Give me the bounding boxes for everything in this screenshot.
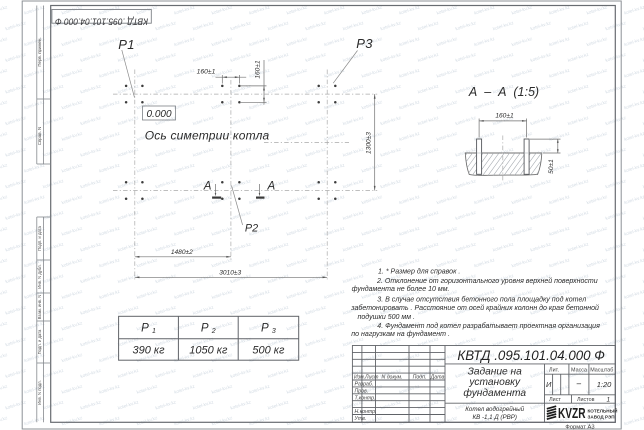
- svg-text:kotel-kv.kz: kotel-kv.kz: [511, 194, 534, 205]
- svg-text:kotel-kv.kz: kotel-kv.kz: [323, 131, 346, 142]
- svg-text:Подп.: Подп.: [413, 375, 427, 381]
- svg-text:kotel-kv.kz: kotel-kv.kz: [361, 352, 384, 363]
- svg-text:kotel-kv.kz: kotel-kv.kz: [530, 241, 553, 252]
- svg-text:3010±3: 3010±3: [219, 270, 241, 277]
- svg-text:kotel-kv.kz: kotel-kv.kz: [623, 131, 644, 142]
- svg-text:kotel-kv.kz: kotel-kv.kz: [417, 20, 440, 31]
- svg-text:kotel-kv.kz: kotel-kv.kz: [548, 383, 571, 394]
- svg-text:Подп. и дата: Подп. и дата: [37, 225, 42, 250]
- svg-text:kotel-kv.kz: kotel-kv.kz: [530, 52, 553, 63]
- svg-text:kotel-kv.kz: kotel-kv.kz: [305, 115, 328, 126]
- svg-text:kotel-kv.kz: kotel-kv.kz: [267, 83, 290, 94]
- svg-text:kotel-kv.kz: kotel-kv.kz: [323, 162, 346, 173]
- svg-text:kotel-kv.kz: kotel-kv.kz: [342, 241, 365, 252]
- svg-text:kotel-kv.kz: kotel-kv.kz: [286, 194, 309, 205]
- svg-text:kotel-kv.kz: kotel-kv.kz: [98, 194, 121, 205]
- svg-text:Масса: Масса: [571, 368, 587, 374]
- svg-text:kotel-kv.kz: kotel-kv.kz: [98, 383, 121, 394]
- svg-text:kotel-kv.kz: kotel-kv.kz: [230, 178, 253, 189]
- svg-text:kotel-kv.kz: kotel-kv.kz: [267, 368, 290, 379]
- svg-text:kotel-kv.kz: kotel-kv.kz: [323, 415, 346, 426]
- svg-text:kotel-kv.kz: kotel-kv.kz: [605, 273, 628, 284]
- svg-text:kotel-kv.kz: kotel-kv.kz: [23, 36, 46, 47]
- svg-text:kotel-kv.kz: kotel-kv.kz: [286, 257, 309, 268]
- svg-text:kotel-kv.kz: kotel-kv.kz: [436, 194, 459, 205]
- svg-text:kotel-kv.kz: kotel-kv.kz: [230, 399, 253, 410]
- svg-text:kotel-kv.kz: kotel-kv.kz: [398, 99, 421, 110]
- svg-text:kotel-kv.kz: kotel-kv.kz: [286, 36, 309, 47]
- svg-text:kotel-kv.kz: kotel-kv.kz: [492, 178, 515, 189]
- svg-text:kotel-kv.kz: kotel-kv.kz: [155, 52, 178, 63]
- svg-text:kotel-kv.kz: kotel-kv.kz: [436, 383, 459, 394]
- svg-text:kotel-kv.kz: kotel-kv.kz: [380, 20, 403, 31]
- svg-text:Р1: Р1: [118, 37, 135, 52]
- svg-text:kotel-kv.kz: kotel-kv.kz: [342, 210, 365, 221]
- svg-text:kotel-kv.kz: kotel-kv.kz: [42, 273, 65, 284]
- svg-text:Р2: Р2: [245, 222, 258, 234]
- svg-text:kotel-kv.kz: kotel-kv.kz: [0, 131, 9, 142]
- svg-text:kotel-kv.kz: kotel-kv.kz: [605, 20, 628, 31]
- svg-text:kotel-kv.kz: kotel-kv.kz: [473, 67, 496, 78]
- svg-text:kotel-kv.kz: kotel-kv.kz: [136, 225, 159, 236]
- svg-text:kotel-kv.kz: kotel-kv.kz: [623, 257, 644, 268]
- svg-text:kotel-kv.kz: kotel-kv.kz: [548, 131, 571, 142]
- svg-text:kotel-kv.kz: kotel-kv.kz: [61, 36, 84, 47]
- svg-text:kotel-kv.kz: kotel-kv.kz: [323, 289, 346, 300]
- svg-text:kotel-kv.kz: kotel-kv.kz: [5, 52, 28, 63]
- svg-text:kotel-kv.kz: kotel-kv.kz: [323, 352, 346, 363]
- svg-text:kotel-kv.kz: kotel-kv.kz: [0, 257, 9, 268]
- svg-text:Лист: Лист: [549, 397, 561, 403]
- svg-text:kotel-kv.kz: kotel-kv.kz: [586, 257, 609, 268]
- svg-text:kotel-kv.kz: kotel-kv.kz: [398, 383, 421, 394]
- svg-text:kotel-kv.kz: kotel-kv.kz: [155, 83, 178, 94]
- svg-text:kotel-kv.kz: kotel-kv.kz: [267, 146, 290, 157]
- svg-text:фундамента: фундамента: [463, 387, 526, 399]
- svg-text:kotel-kv.kz: kotel-kv.kz: [230, 52, 253, 63]
- svg-text:kotel-kv.kz: kotel-kv.kz: [323, 36, 346, 47]
- svg-text:kotel-kv.kz: kotel-kv.kz: [305, 399, 328, 410]
- svg-text:KVZR: KVZR: [558, 406, 586, 422]
- svg-text:kotel-kv.kz: kotel-kv.kz: [61, 352, 84, 363]
- svg-text:kotel-kv.kz: kotel-kv.kz: [80, 336, 103, 347]
- svg-text:kotel-kv.kz: kotel-kv.kz: [605, 52, 628, 63]
- svg-text:kotel-kv.kz: kotel-kv.kz: [530, 20, 553, 31]
- svg-text:kotel-kv.kz: kotel-kv.kz: [23, 67, 46, 78]
- svg-text:500 кг: 500 кг: [252, 344, 285, 356]
- svg-text:kotel-kv.kz: kotel-kv.kz: [492, 241, 515, 252]
- svg-text:Перв. примен.: Перв. примен.: [37, 37, 42, 66]
- svg-text:1. * Размер для справок .: 1. * Размер для справок .: [378, 268, 460, 276]
- svg-text:kotel-kv.kz: kotel-kv.kz: [5, 336, 28, 347]
- svg-text:kotel-kv.kz: kotel-kv.kz: [23, 194, 46, 205]
- svg-text:Утв.: Утв.: [355, 416, 367, 422]
- svg-text:kotel-kv.kz: kotel-kv.kz: [0, 383, 9, 394]
- svg-text:kotel-kv.kz: kotel-kv.kz: [155, 399, 178, 410]
- svg-text:kotel-kv.kz: kotel-kv.kz: [305, 83, 328, 94]
- svg-text:kotel-kv.kz: kotel-kv.kz: [173, 383, 196, 394]
- svg-text:kotel-kv.kz: kotel-kv.kz: [0, 194, 9, 205]
- svg-text:kotel-kv.kz: kotel-kv.kz: [305, 52, 328, 63]
- svg-text:kotel-kv.kz: kotel-kv.kz: [361, 67, 384, 78]
- svg-text:kotel-kv.kz: kotel-kv.kz: [473, 257, 496, 268]
- svg-text:kotel-kv.kz: kotel-kv.kz: [380, 52, 403, 63]
- svg-text:kotel-kv.kz: kotel-kv.kz: [342, 146, 365, 157]
- svg-text:kotel-kv.kz: kotel-kv.kz: [136, 415, 159, 426]
- svg-text:kotel-kv.kz: kotel-kv.kz: [417, 83, 440, 94]
- svg-text:kotel-kv.kz: kotel-kv.kz: [623, 99, 644, 110]
- svg-text:kotel-kv.kz: kotel-kv.kz: [286, 225, 309, 236]
- svg-text:kotel-kv.kz: kotel-kv.kz: [323, 225, 346, 236]
- svg-text:kotel-kv.kz: kotel-kv.kz: [42, 241, 65, 252]
- svg-text:kotel-kv.kz: kotel-kv.kz: [455, 241, 478, 252]
- svg-text:1300±3: 1300±3: [366, 132, 373, 154]
- svg-text:kotel-kv.kz: kotel-kv.kz: [80, 210, 103, 221]
- svg-text:kotel-kv.kz: kotel-kv.kz: [398, 415, 421, 426]
- svg-text:kotel-kv.kz: kotel-kv.kz: [605, 241, 628, 252]
- svg-text:kotel-kv.kz: kotel-kv.kz: [192, 273, 215, 284]
- svg-text:kotel-kv.kz: kotel-kv.kz: [173, 415, 196, 426]
- svg-text:kotel-kv.kz: kotel-kv.kz: [342, 115, 365, 126]
- svg-text:kotel-kv.kz: kotel-kv.kz: [117, 83, 140, 94]
- svg-text:kotel-kv.kz: kotel-kv.kz: [0, 4, 9, 15]
- svg-text:КВТД .095.101.04.000 Ф: КВТД .095.101.04.000 Ф: [55, 16, 148, 26]
- svg-text:Задание на: Задание на: [468, 367, 523, 378]
- svg-text:4. Фундамент под котел разраб: 4. Фундамент под котел разрабатывает про…: [377, 322, 600, 330]
- svg-text:kotel-kv.kz: kotel-kv.kz: [567, 146, 590, 157]
- svg-text:kotel-kv.kz: kotel-kv.kz: [305, 146, 328, 157]
- svg-text:kotel-kv.kz: kotel-kv.kz: [98, 352, 121, 363]
- svg-text:kotel-kv.kz: kotel-kv.kz: [98, 131, 121, 142]
- svg-text:kotel-kv.kz: kotel-kv.kz: [230, 241, 253, 252]
- svg-text:kotel-kv.kz: kotel-kv.kz: [173, 194, 196, 205]
- svg-text:kotel-kv.kz: kotel-kv.kz: [623, 415, 644, 426]
- svg-text:kotel-kv.kz: kotel-kv.kz: [98, 289, 121, 300]
- svg-text:kotel-kv.kz: kotel-kv.kz: [42, 210, 65, 221]
- svg-text:kotel-kv.kz: kotel-kv.kz: [286, 320, 309, 331]
- svg-text:kotel-kv.kz: kotel-kv.kz: [530, 210, 553, 221]
- svg-text:kotel-kv.kz: kotel-kv.kz: [117, 210, 140, 221]
- svg-text:160±1: 160±1: [495, 113, 514, 120]
- svg-text:kotel-kv.kz: kotel-kv.kz: [267, 399, 290, 410]
- svg-text:kotel-kv.kz: kotel-kv.kz: [342, 83, 365, 94]
- svg-text:kotel-kv.kz: kotel-kv.kz: [230, 304, 253, 315]
- svg-text:kotel-kv.kz: kotel-kv.kz: [61, 194, 84, 205]
- svg-text:kotel-kv.kz: kotel-kv.kz: [567, 115, 590, 126]
- svg-text:kotel-kv.kz: kotel-kv.kz: [586, 194, 609, 205]
- svg-text:kotel-kv.kz: kotel-kv.kz: [23, 320, 46, 331]
- svg-text:kotel-kv.kz: kotel-kv.kz: [511, 131, 534, 142]
- svg-text:kotel-kv.kz: kotel-kv.kz: [398, 36, 421, 47]
- svg-text:kotel-kv.kz: kotel-kv.kz: [492, 20, 515, 31]
- svg-text:kotel-kv.kz: kotel-kv.kz: [473, 194, 496, 205]
- svg-text:kotel-kv.kz: kotel-kv.kz: [61, 67, 84, 78]
- svg-text:kotel-kv.kz: kotel-kv.kz: [211, 162, 234, 173]
- svg-text:kotel-kv.kz: kotel-kv.kz: [248, 383, 271, 394]
- svg-text:kotel-kv.kz: kotel-kv.kz: [192, 304, 215, 315]
- svg-text:kotel-kv.kz: kotel-kv.kz: [211, 415, 234, 426]
- svg-text:ЗАВОД РЭП: ЗАВОД РЭП: [588, 414, 615, 419]
- svg-text:Пров.: Пров.: [355, 388, 369, 394]
- svg-text:kotel-kv.kz: kotel-kv.kz: [605, 178, 628, 189]
- svg-text:kotel-kv.kz: kotel-kv.kz: [173, 289, 196, 300]
- svg-text:Дата: Дата: [430, 375, 445, 381]
- svg-text:3. В случае отсутствия бетонн: 3. В случае отсутствия бетонного пола пл…: [377, 295, 586, 303]
- svg-text:kotel-kv.kz: kotel-kv.kz: [305, 20, 328, 31]
- svg-text:kotel-kv.kz: kotel-kv.kz: [98, 162, 121, 173]
- svg-text:kotel-kv.kz: kotel-kv.kz: [511, 257, 534, 268]
- svg-text:kotel-kv.kz: kotel-kv.kz: [305, 336, 328, 347]
- svg-text:kotel-kv.kz: kotel-kv.kz: [473, 36, 496, 47]
- svg-text:kotel-kv.kz: kotel-kv.kz: [436, 162, 459, 173]
- svg-text:kotel-kv.kz: kotel-kv.kz: [173, 225, 196, 236]
- svg-text:kotel-kv.kz: kotel-kv.kz: [61, 131, 84, 142]
- svg-text:kotel-kv.kz: kotel-kv.kz: [248, 415, 271, 426]
- svg-text:kotel-kv.kz: kotel-kv.kz: [80, 83, 103, 94]
- svg-text:kotel-kv.kz: kotel-kv.kz: [80, 52, 103, 63]
- svg-text:kotel-kv.kz: kotel-kv.kz: [286, 99, 309, 110]
- svg-text:подушки 500 мм .: подушки 500 мм .: [358, 313, 416, 321]
- svg-text:kotel-kv.kz: kotel-kv.kz: [98, 67, 121, 78]
- svg-text:kotel-kv.kz: kotel-kv.kz: [605, 304, 628, 315]
- svg-text:Листов: Листов: [577, 397, 595, 403]
- svg-text:kotel-kv.kz: kotel-kv.kz: [117, 115, 140, 126]
- svg-text:kotel-kv.kz: kotel-kv.kz: [211, 99, 234, 110]
- svg-text:kotel-kv.kz: kotel-kv.kz: [42, 399, 65, 410]
- svg-text:kotel-kv.kz: kotel-kv.kz: [267, 273, 290, 284]
- svg-text:kotel-kv.kz: kotel-kv.kz: [586, 99, 609, 110]
- svg-text:kotel-kv.kz: kotel-kv.kz: [136, 67, 159, 78]
- svg-text:kotel-kv.kz: kotel-kv.kz: [80, 178, 103, 189]
- svg-text:kotel-kv.kz: kotel-kv.kz: [417, 115, 440, 126]
- svg-text:kotel-kv.kz: kotel-kv.kz: [286, 415, 309, 426]
- svg-text:kotel-kv.kz: kotel-kv.kz: [473, 99, 496, 110]
- svg-text:kotel-kv.kz: kotel-kv.kz: [23, 415, 46, 426]
- svg-text:kotel-kv.kz: kotel-kv.kz: [80, 273, 103, 284]
- svg-text:kotel-kv.kz: kotel-kv.kz: [98, 320, 121, 331]
- svg-text:kotel-kv.kz: kotel-kv.kz: [61, 289, 84, 300]
- svg-text:kotel-kv.kz: kotel-kv.kz: [173, 99, 196, 110]
- svg-text:kotel-kv.kz: kotel-kv.kz: [286, 383, 309, 394]
- svg-text:kotel-kv.kz: kotel-kv.kz: [586, 67, 609, 78]
- svg-text:kotel-kv.kz: kotel-kv.kz: [586, 162, 609, 173]
- svg-text:kotel-kv.kz: kotel-kv.kz: [173, 67, 196, 78]
- svg-text:kotel-kv.kz: kotel-kv.kz: [173, 320, 196, 331]
- svg-text:kotel-kv.kz: kotel-kv.kz: [455, 178, 478, 189]
- svg-text:kotel-kv.kz: kotel-kv.kz: [286, 67, 309, 78]
- svg-text:Н.контр.: Н.контр.: [355, 409, 377, 415]
- svg-text:kotel-kv.kz: kotel-kv.kz: [248, 99, 271, 110]
- svg-text:kotel-kv.kz: kotel-kv.kz: [323, 383, 346, 394]
- svg-text:kotel-kv.kz: kotel-kv.kz: [192, 146, 215, 157]
- svg-text:kotel-kv.kz: kotel-kv.kz: [80, 241, 103, 252]
- svg-text:Инв. N подл.: Инв. N подл.: [37, 380, 42, 405]
- svg-text:kotel-kv.kz: kotel-kv.kz: [23, 383, 46, 394]
- svg-text:kotel-kv.kz: kotel-kv.kz: [230, 336, 253, 347]
- svg-text:kotel-kv.kz: kotel-kv.kz: [342, 273, 365, 284]
- svg-text:kotel-kv.kz: kotel-kv.kz: [605, 146, 628, 157]
- svg-text:Подп. и дата: Подп. и дата: [37, 329, 42, 354]
- svg-text:kotel-kv.kz: kotel-kv.kz: [455, 115, 478, 126]
- svg-text:kotel-kv.kz: kotel-kv.kz: [23, 289, 46, 300]
- svg-text:1050 кг: 1050 кг: [189, 344, 228, 356]
- svg-text:kotel-kv.kz: kotel-kv.kz: [436, 36, 459, 47]
- svg-text:kotel-kv.kz: kotel-kv.kz: [436, 352, 459, 363]
- svg-text:kotel-kv.kz: kotel-kv.kz: [61, 415, 84, 426]
- svg-text:kotel-kv.kz: kotel-kv.kz: [80, 304, 103, 315]
- svg-text:kotel-kv.kz: kotel-kv.kz: [23, 4, 46, 15]
- svg-text:kotel-kv.kz: kotel-kv.kz: [473, 225, 496, 236]
- svg-text:Изм.Лист: Изм.Лист: [354, 375, 379, 381]
- svg-text:kotel-kv.kz: kotel-kv.kz: [211, 383, 234, 394]
- svg-text:kotel-kv.kz: kotel-kv.kz: [5, 368, 28, 379]
- svg-text:kotel-kv.kz: kotel-kv.kz: [5, 241, 28, 252]
- svg-text:kotel-kv.kz: kotel-kv.kz: [0, 67, 9, 78]
- svg-text:А: А: [266, 181, 275, 193]
- svg-text:kotel-kv.kz: kotel-kv.kz: [398, 257, 421, 268]
- svg-text:kotel-kv.kz: kotel-kv.kz: [267, 210, 290, 221]
- svg-text:kotel-kv.kz: kotel-kv.kz: [192, 368, 215, 379]
- svg-text:kotel-kv.kz: kotel-kv.kz: [61, 320, 84, 331]
- svg-text:kotel-kv.kz: kotel-kv.kz: [623, 225, 644, 236]
- svg-text:kotel-kv.kz: kotel-kv.kz: [23, 352, 46, 363]
- svg-text:kotel-kv.kz: kotel-kv.kz: [623, 383, 644, 394]
- svg-text:kotel-kv.kz: kotel-kv.kz: [623, 4, 644, 15]
- svg-text:kotel-kv.kz: kotel-kv.kz: [323, 67, 346, 78]
- svg-text:kotel-kv.kz: kotel-kv.kz: [511, 225, 534, 236]
- svg-text:kotel-kv.kz: kotel-kv.kz: [155, 304, 178, 315]
- svg-text:kotel-kv.kz: kotel-kv.kz: [492, 210, 515, 221]
- svg-text:50±1: 50±1: [548, 159, 555, 174]
- svg-text:kotel-kv.kz: kotel-kv.kz: [192, 241, 215, 252]
- svg-text:160±1: 160±1: [255, 60, 262, 79]
- svg-text:kotel-kv.kz: kotel-kv.kz: [286, 131, 309, 142]
- svg-text:kotel-kv.kz: kotel-kv.kz: [80, 368, 103, 379]
- svg-text:kotel-kv.kz: kotel-kv.kz: [623, 194, 644, 205]
- svg-text:kotel-kv.kz: kotel-kv.kz: [417, 52, 440, 63]
- svg-text:kotel-kv.kz: kotel-kv.kz: [136, 162, 159, 173]
- svg-text:kotel-kv.kz: kotel-kv.kz: [548, 67, 571, 78]
- svg-text:kotel-kv.kz: kotel-kv.kz: [511, 99, 534, 110]
- svg-text:kotel-kv.kz: kotel-kv.kz: [492, 52, 515, 63]
- svg-text:kotel-kv.kz: kotel-kv.kz: [117, 399, 140, 410]
- svg-text:Взам. инв. N: Взам. инв. N: [37, 295, 42, 319]
- svg-text:2. Отклонение от горизонтальн: 2. Отклонение от горизонтального уровня …: [376, 277, 598, 285]
- svg-text:kotel-kv.kz: kotel-kv.kz: [380, 178, 403, 189]
- svg-text:kotel-kv.kz: kotel-kv.kz: [117, 304, 140, 315]
- svg-text:kotel-kv.kz: kotel-kv.kz: [455, 210, 478, 221]
- svg-text:kotel-kv.kz: kotel-kv.kz: [380, 83, 403, 94]
- svg-text:kotel-kv.kz: kotel-kv.kz: [305, 273, 328, 284]
- svg-text:N докум.: N докум.: [382, 375, 403, 381]
- svg-text:kotel-kv.kz: kotel-kv.kz: [61, 257, 84, 268]
- svg-text:kotel-kv.kz: kotel-kv.kz: [286, 352, 309, 363]
- svg-text:kotel-kv.kz: kotel-kv.kz: [211, 36, 234, 47]
- svg-text:kotel-kv.kz: kotel-kv.kz: [0, 36, 9, 47]
- svg-text:КВ -1,1 Д (РВР): КВ -1,1 Д (РВР): [472, 414, 516, 421]
- svg-text:kotel-kv.kz: kotel-kv.kz: [436, 67, 459, 78]
- svg-text:А: А: [203, 181, 212, 193]
- svg-text:kotel-kv.kz: kotel-kv.kz: [530, 178, 553, 189]
- svg-text:kotel-kv.kz: kotel-kv.kz: [5, 146, 28, 157]
- svg-text:kotel-kv.kz: kotel-kv.kz: [342, 52, 365, 63]
- svg-text:kotel-kv.kz: kotel-kv.kz: [380, 241, 403, 252]
- svg-text:kotel-kv.kz: kotel-kv.kz: [305, 210, 328, 221]
- svg-text:kotel-kv.kz: kotel-kv.kz: [0, 352, 9, 363]
- svg-text:kotel-kv.kz: kotel-kv.kz: [417, 241, 440, 252]
- svg-text:kotel-kv.kz: kotel-kv.kz: [248, 289, 271, 300]
- svg-text:КОТЕЛЬНЫЙ: КОТЕЛЬНЫЙ: [588, 407, 618, 414]
- svg-text:А – А (1:5): А – А (1:5): [468, 85, 539, 99]
- svg-text:1: 1: [606, 397, 610, 404]
- svg-text:kotel-kv.kz: kotel-kv.kz: [23, 131, 46, 142]
- svg-text:kotel-kv.kz: kotel-kv.kz: [117, 52, 140, 63]
- svg-text:kotel-kv.kz: kotel-kv.kz: [511, 67, 534, 78]
- svg-text:kotel-kv.kz: kotel-kv.kz: [605, 83, 628, 94]
- svg-text:1:20: 1:20: [597, 380, 612, 389]
- svg-text:kotel-kv.kz: kotel-kv.kz: [586, 131, 609, 142]
- svg-text:kotel-kv.kz: kotel-kv.kz: [5, 399, 28, 410]
- svg-text:kotel-kv.kz: kotel-kv.kz: [248, 36, 271, 47]
- svg-text:kotel-kv.kz: kotel-kv.kz: [417, 210, 440, 221]
- svg-text:Формат А3: Формат А3: [565, 425, 594, 430]
- svg-text:kotel-kv.kz: kotel-kv.kz: [305, 178, 328, 189]
- svg-text:kotel-kv.kz: kotel-kv.kz: [61, 383, 84, 394]
- svg-text:kotel-kv.kz: kotel-kv.kz: [567, 83, 590, 94]
- svg-text:kotel-kv.kz: kotel-kv.kz: [361, 257, 384, 268]
- svg-text:kotel-kv.kz: kotel-kv.kz: [361, 194, 384, 205]
- svg-text:КВТД .095.101.04.000 Ф: КВТД .095.101.04.000 Ф: [457, 348, 605, 363]
- svg-text:установку: установку: [468, 377, 521, 388]
- svg-text:kotel-kv.kz: kotel-kv.kz: [248, 257, 271, 268]
- svg-text:kotel-kv.kz: kotel-kv.kz: [155, 146, 178, 157]
- svg-text:kotel-kv.kz: kotel-kv.kz: [42, 368, 65, 379]
- svg-text:kotel-kv.kz: kotel-kv.kz: [567, 178, 590, 189]
- svg-text:kotel-kv.kz: kotel-kv.kz: [136, 194, 159, 205]
- svg-text:kotel-kv.kz: kotel-kv.kz: [361, 162, 384, 173]
- svg-text:kotel-kv.kz: kotel-kv.kz: [623, 162, 644, 173]
- svg-text:kotel-kv.kz: kotel-kv.kz: [192, 115, 215, 126]
- svg-text:kotel-kv.kz: kotel-kv.kz: [0, 415, 9, 426]
- svg-text:kotel-kv.kz: kotel-kv.kz: [98, 257, 121, 268]
- svg-text:kotel-kv.kz: kotel-kv.kz: [5, 210, 28, 221]
- svg-text:kotel-kv.kz: kotel-kv.kz: [567, 20, 590, 31]
- svg-text:kotel-kv.kz: kotel-kv.kz: [42, 146, 65, 157]
- svg-text:kotel-kv.kz: kotel-kv.kz: [136, 36, 159, 47]
- svg-text:kotel-kv.kz: kotel-kv.kz: [80, 146, 103, 157]
- svg-text:kotel-kv.kz: kotel-kv.kz: [436, 257, 459, 268]
- svg-text:kotel-kv.kz: kotel-kv.kz: [42, 52, 65, 63]
- svg-text:kotel-kv.kz: kotel-kv.kz: [623, 320, 644, 331]
- svg-text:забетонировать . Расстояние от: забетонировать . Расстояние от осей край…: [350, 304, 599, 312]
- svg-text:фундамента не более 10 мм.: фундамента не более 10 мм.: [352, 285, 450, 293]
- svg-text:kotel-kv.kz: kotel-kv.kz: [155, 273, 178, 284]
- svg-text:kotel-kv.kz: kotel-kv.kz: [61, 162, 84, 173]
- svg-text:kotel-kv.kz: kotel-kv.kz: [230, 83, 253, 94]
- svg-text:kotel-kv.kz: kotel-kv.kz: [567, 241, 590, 252]
- svg-text:kotel-kv.kz: kotel-kv.kz: [5, 304, 28, 315]
- svg-text:kotel-kv.kz: kotel-kv.kz: [80, 399, 103, 410]
- svg-text:kotel-kv.kz: kotel-kv.kz: [192, 399, 215, 410]
- svg-text:kotel-kv.kz: kotel-kv.kz: [61, 225, 84, 236]
- svg-text:kotel-kv.kz: kotel-kv.kz: [436, 99, 459, 110]
- svg-text:kotel-kv.kz: kotel-kv.kz: [567, 210, 590, 221]
- svg-text:kotel-kv.kz: kotel-kv.kz: [117, 178, 140, 189]
- svg-text:kotel-kv.kz: kotel-kv.kz: [605, 115, 628, 126]
- svg-text:kotel-kv.kz: kotel-kv.kz: [211, 289, 234, 300]
- svg-text:kotel-kv.kz: kotel-kv.kz: [192, 20, 215, 31]
- svg-text:kotel-kv.kz: kotel-kv.kz: [5, 83, 28, 94]
